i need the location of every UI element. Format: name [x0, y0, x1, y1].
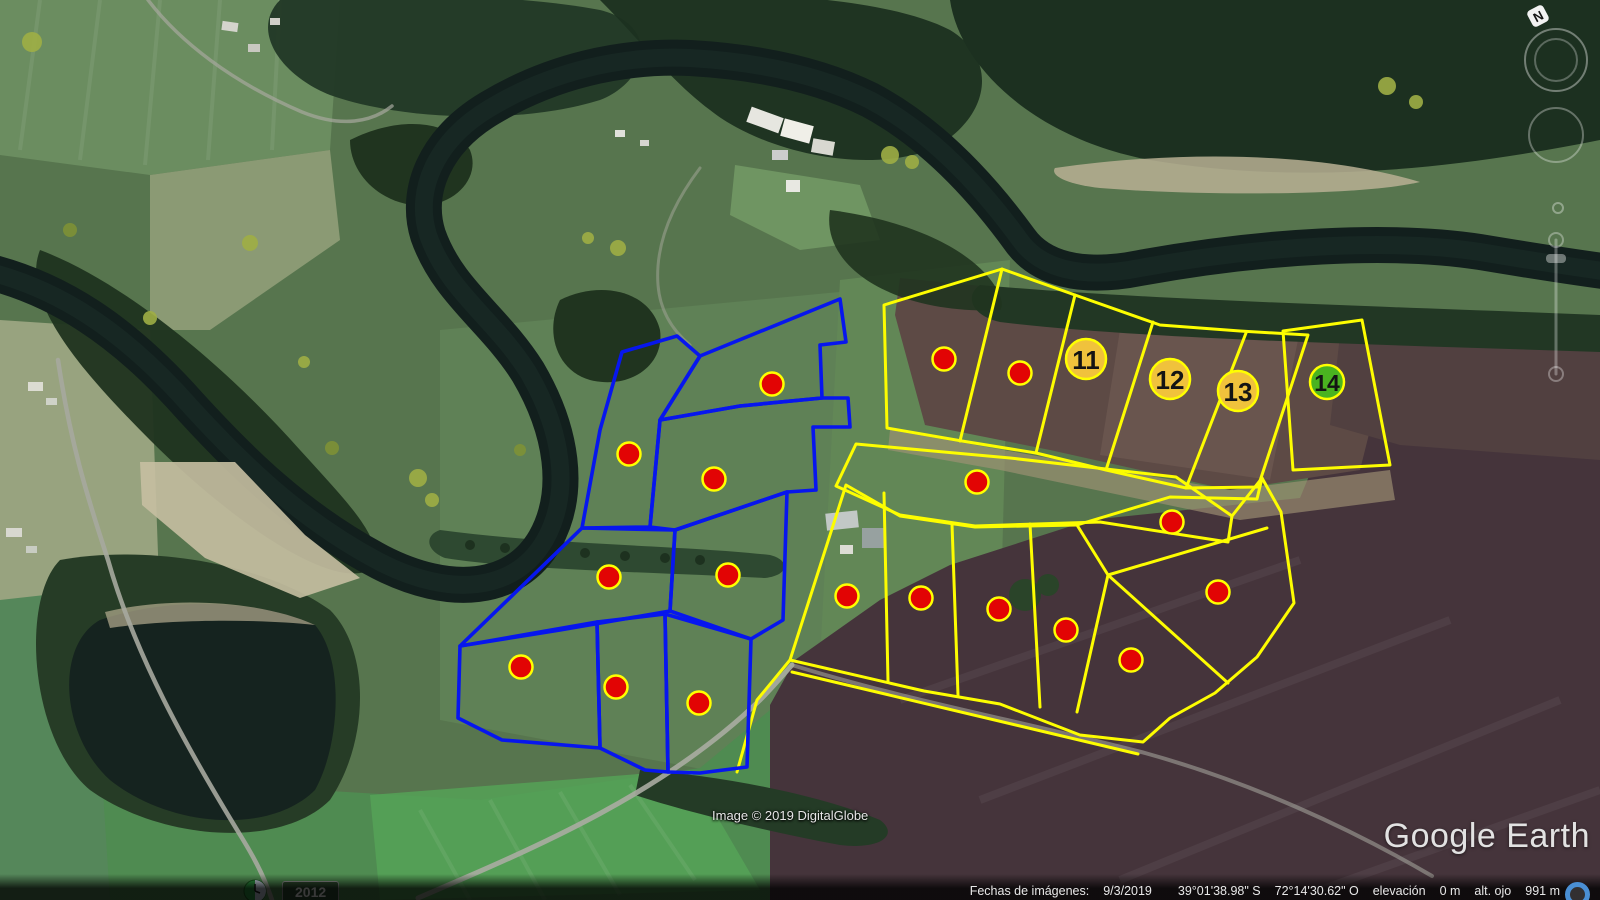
parcel-divider-yellow[interactable] — [1077, 525, 1108, 712]
eye-altitude-label: alt. ojo — [1474, 884, 1511, 898]
placemark-badge-label-11: 11 — [1072, 345, 1100, 375]
parcel-divider-yellow[interactable] — [952, 524, 958, 695]
parcel-divider-yellow[interactable] — [884, 493, 888, 681]
zoom-slider[interactable] — [1546, 233, 1566, 381]
google-earth-logo: Google Earth — [1384, 817, 1590, 856]
streaming-indicator — [1565, 882, 1590, 900]
placemark-marker[interactable] — [703, 468, 726, 491]
eye-altitude-value: 991 m — [1525, 884, 1560, 898]
placemark-badge-label-12: 12 — [1156, 365, 1185, 395]
parcel-boundary-blue[interactable] — [650, 398, 850, 530]
parcel-divider-yellow[interactable] — [737, 660, 790, 772]
elevation-value: 0 m — [1440, 884, 1461, 898]
parcel-boundary-blue[interactable] — [660, 299, 846, 420]
parcel-divider-yellow[interactable] — [1106, 322, 1153, 470]
parcel-boundary-blue[interactable] — [665, 614, 751, 773]
placemark-marker[interactable] — [966, 471, 989, 494]
imagery-dates-label: Fechas de imágenes: — [970, 884, 1090, 898]
status-bar: Fechas de imágenes: 9/3/2019 39°01'38.98… — [0, 874, 1600, 900]
parcel-boundary-blue[interactable] — [458, 622, 600, 748]
placemark-marker[interactable] — [761, 373, 784, 396]
longitude-value: 72°14'30.62" O — [1275, 884, 1359, 898]
placemark-marker[interactable] — [836, 585, 859, 608]
parcel-divider-yellow[interactable] — [1030, 524, 1040, 707]
navigation-controls: N — [1480, 0, 1600, 420]
placemark-marker[interactable] — [717, 564, 740, 587]
parcel-boundary-blue[interactable] — [582, 336, 700, 528]
parcel-divider-yellow[interactable] — [792, 672, 1138, 754]
placemark-marker[interactable] — [510, 656, 533, 679]
placemark-marker[interactable] — [1055, 619, 1078, 642]
map-viewport[interactable]: 11121314 N Image © 2019 DigitalGlobe Goo… — [0, 0, 1600, 900]
imagery-attribution: Image © 2019 DigitalGlobe — [712, 808, 868, 823]
elevation-label: elevación — [1373, 884, 1426, 898]
placemark-marker[interactable] — [988, 598, 1011, 621]
latitude-value: 39°01'38.98" S — [1178, 884, 1261, 898]
placemark-marker[interactable] — [1120, 649, 1143, 672]
placemark-marker[interactable] — [933, 348, 956, 371]
look-joystick[interactable] — [1529, 108, 1583, 213]
placemark-marker[interactable] — [598, 566, 621, 589]
parcel-divider-yellow[interactable] — [960, 269, 1002, 441]
parcel-overlay: 11121314 — [0, 0, 1600, 900]
imagery-date-value: 9/3/2019 — [1103, 884, 1152, 898]
parcel-divider-yellow[interactable] — [1036, 295, 1075, 453]
compass-control[interactable]: N — [1525, 4, 1587, 91]
placemark-badge-label-14: 14 — [1314, 370, 1340, 396]
placemark-marker[interactable] — [1009, 362, 1032, 385]
placemark-marker[interactable] — [688, 692, 711, 715]
north-indicator-icon[interactable]: N — [1526, 4, 1550, 28]
placemark-marker[interactable] — [618, 443, 641, 466]
placemark-badge-label-13: 13 — [1224, 377, 1253, 407]
placemark-marker[interactable] — [910, 587, 933, 610]
placemark-marker[interactable] — [1207, 581, 1230, 604]
zoom-slider-handle[interactable] — [1546, 254, 1566, 263]
placemark-marker[interactable] — [605, 676, 628, 699]
parcel-boundary-yellow[interactable] — [790, 478, 1294, 742]
placemark-marker[interactable] — [1161, 511, 1184, 534]
